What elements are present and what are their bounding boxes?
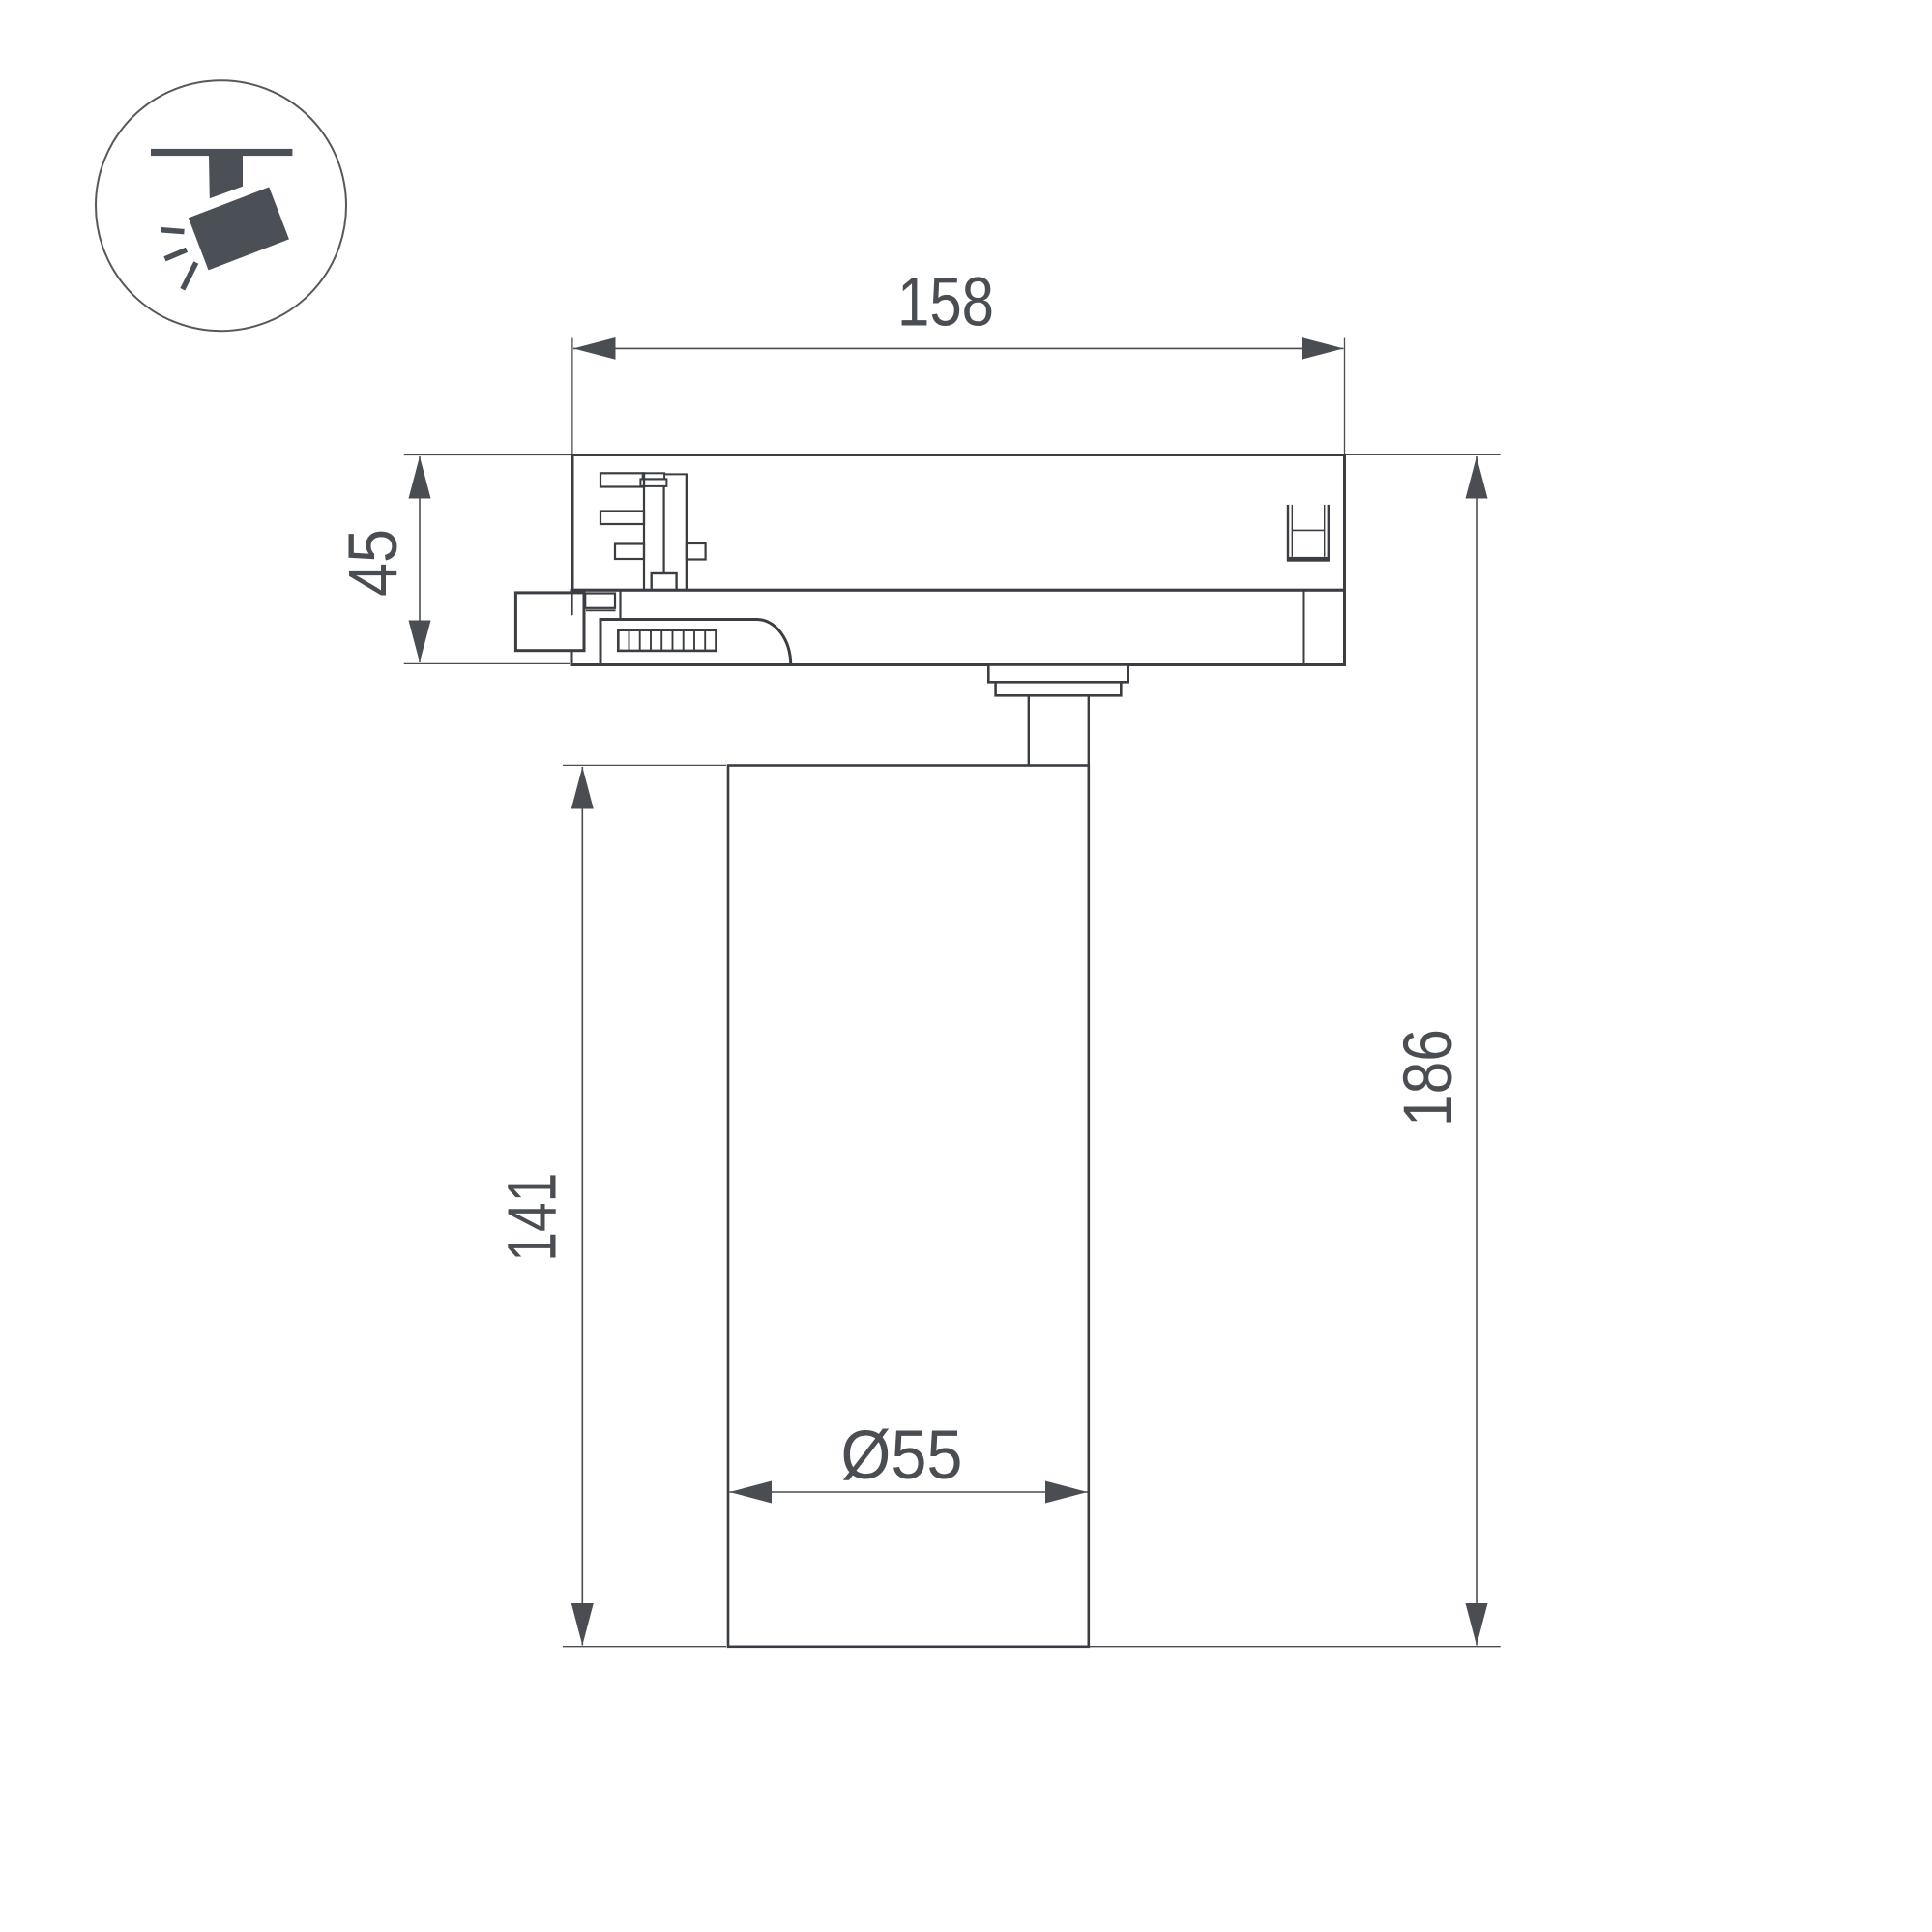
svg-text:Ø55: Ø55 — [841, 1418, 963, 1494]
svg-text:186: 186 — [1390, 1029, 1467, 1127]
svg-text:45: 45 — [336, 529, 412, 597]
svg-text:141: 141 — [495, 1173, 571, 1262]
svg-text:158: 158 — [897, 265, 994, 341]
